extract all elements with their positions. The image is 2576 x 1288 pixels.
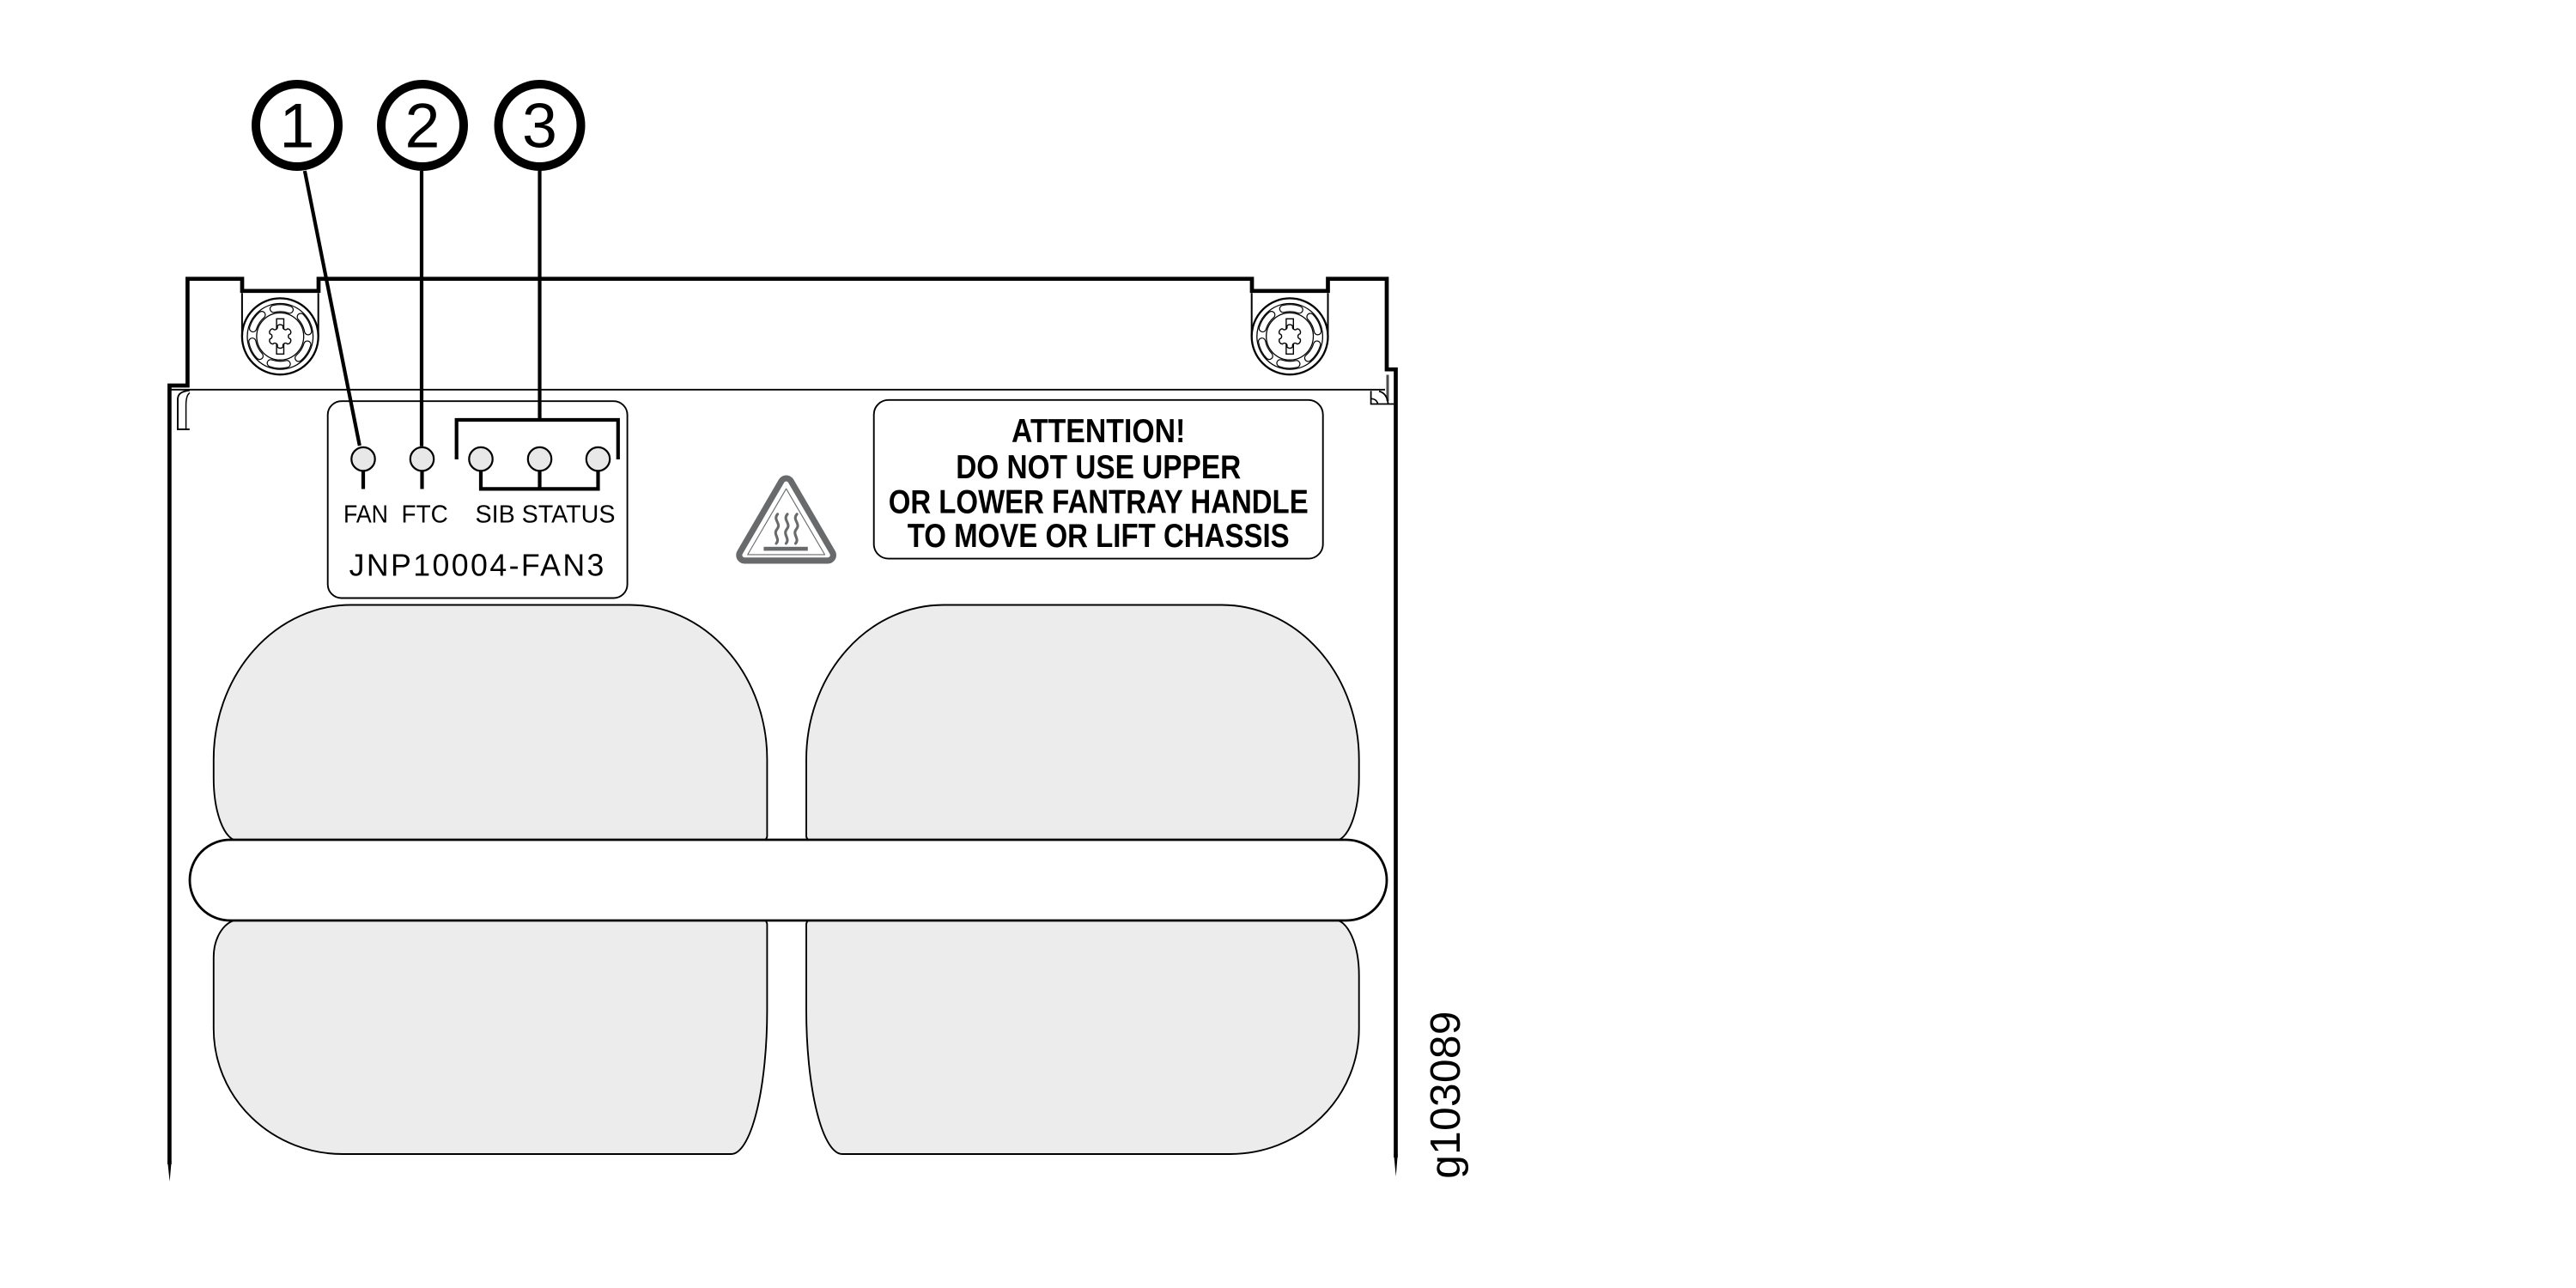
svg-text:FAN: FAN [343, 501, 388, 529]
svg-text:JNP10004-FAN3: JNP10004-FAN3 [349, 548, 605, 582]
svg-text:2: 2 [405, 89, 440, 161]
svg-text:FTC: FTC [402, 501, 448, 529]
svg-text:OR LOWER FANTRAY HANDLE: OR LOWER FANTRAY HANDLE [889, 484, 1309, 521]
svg-text:TO MOVE OR LIFT CHASSIS: TO MOVE OR LIFT CHASSIS [908, 518, 1290, 555]
svg-text:SIB STATUS: SIB STATUS [476, 501, 616, 529]
svg-text:3: 3 [522, 89, 557, 161]
svg-text:ATTENTION!: ATTENTION! [1012, 413, 1185, 450]
svg-text:DO NOT USE UPPER: DO NOT USE UPPER [956, 449, 1241, 486]
svg-text:g103089: g103089 [1422, 1011, 1469, 1179]
svg-text:1: 1 [280, 89, 315, 161]
